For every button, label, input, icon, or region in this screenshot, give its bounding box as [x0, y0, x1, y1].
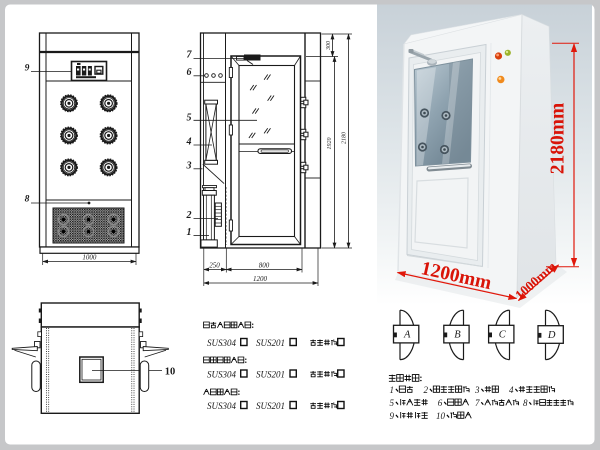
svg-text:SUS201: SUS201 [256, 401, 285, 411]
svg-text:3: 3 [474, 385, 480, 395]
svg-text:4: 4 [186, 137, 192, 148]
svg-text:1200: 1200 [253, 275, 268, 283]
svg-text:1920: 1920 [327, 138, 333, 150]
svg-text:7: 7 [475, 398, 480, 408]
svg-text:SUS304: SUS304 [207, 338, 236, 348]
svg-text:250: 250 [209, 262, 220, 270]
svg-text:SUS201: SUS201 [256, 370, 285, 380]
svg-text:10: 10 [165, 367, 176, 378]
svg-text:D: D [547, 330, 556, 341]
svg-text:10: 10 [436, 411, 446, 421]
svg-text:2180mm: 2180mm [548, 103, 569, 175]
svg-text:800: 800 [259, 262, 270, 270]
svg-text:B: B [454, 330, 461, 341]
svg-text:1: 1 [187, 227, 192, 238]
svg-text:3: 3 [186, 161, 192, 172]
svg-text:2: 2 [186, 210, 192, 221]
svg-text:SUS201: SUS201 [256, 338, 285, 348]
svg-text:9: 9 [25, 64, 30, 74]
svg-text:300: 300 [326, 41, 332, 51]
svg-text:2: 2 [424, 385, 429, 395]
svg-text:A: A [403, 330, 411, 341]
svg-text:6: 6 [438, 398, 443, 408]
svg-text:8: 8 [25, 195, 30, 205]
svg-text:SUS304: SUS304 [207, 401, 236, 411]
svg-text:5: 5 [187, 113, 192, 124]
svg-text:2180: 2180 [342, 132, 348, 144]
svg-text:1: 1 [390, 385, 395, 395]
svg-text:9: 9 [390, 411, 395, 421]
svg-text:5: 5 [390, 398, 395, 408]
svg-text:1000: 1000 [82, 254, 97, 262]
svg-text:C: C [499, 330, 507, 341]
svg-text:6: 6 [187, 67, 192, 78]
svg-text:8: 8 [523, 398, 528, 408]
svg-text:4: 4 [509, 385, 514, 395]
svg-text:SUS304: SUS304 [207, 370, 236, 380]
